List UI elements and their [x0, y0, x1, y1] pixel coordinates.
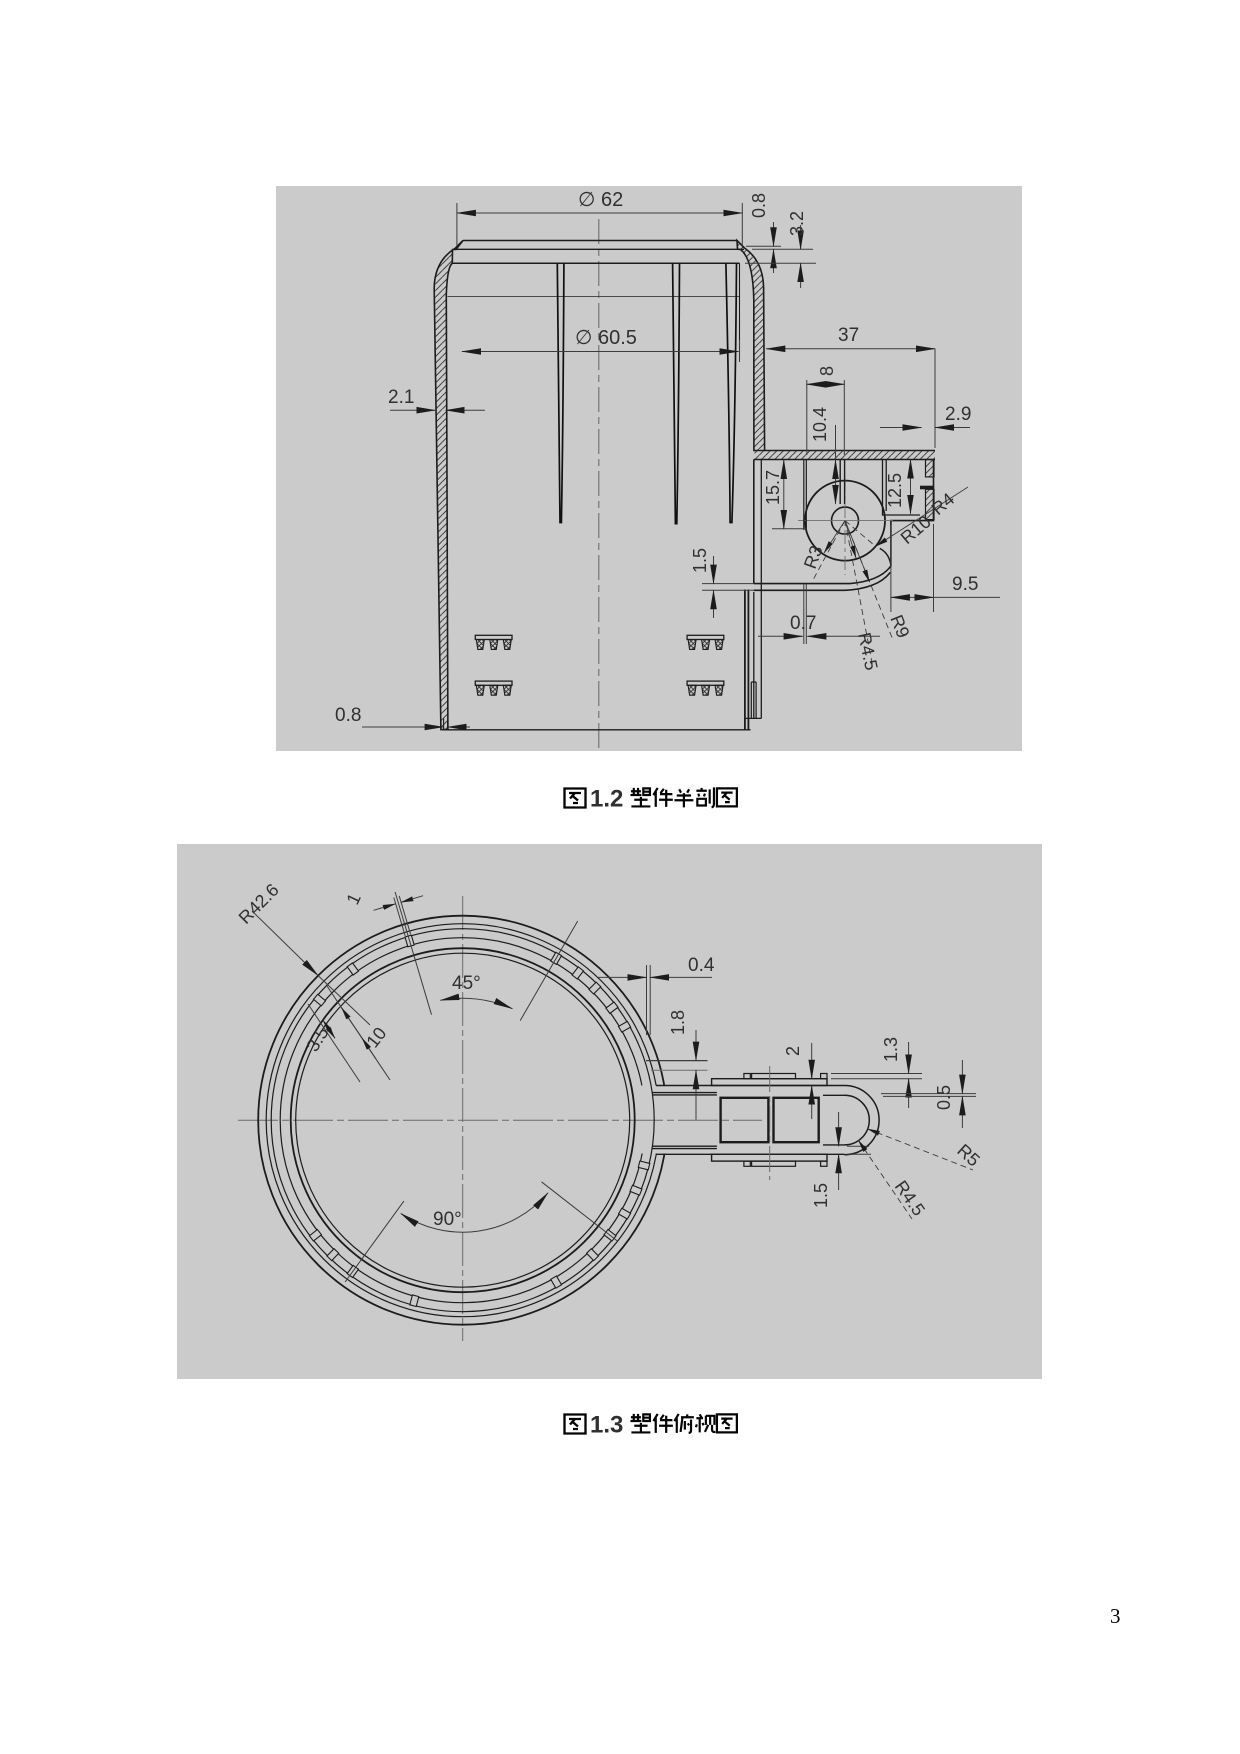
svg-text:1.8: 1.8 — [668, 1010, 688, 1035]
svg-text:15.7: 15.7 — [763, 470, 783, 505]
svg-text:37: 37 — [838, 325, 859, 346]
svg-text:0.5: 0.5 — [934, 1085, 954, 1110]
svg-text:2.9: 2.9 — [945, 404, 971, 425]
svg-text:1.5: 1.5 — [811, 1183, 831, 1208]
svg-text:90°: 90° — [433, 1209, 462, 1230]
svg-text:1.2: 1.2 — [590, 786, 623, 811]
svg-text:1.5: 1.5 — [690, 548, 710, 573]
svg-text:45°: 45° — [452, 973, 481, 994]
svg-text:1.3: 1.3 — [881, 1037, 901, 1062]
svg-text:8: 8 — [817, 366, 837, 376]
svg-text:∅ 62: ∅ 62 — [578, 189, 623, 211]
svg-text:1.3: 1.3 — [590, 1412, 623, 1437]
svg-text:0.8: 0.8 — [749, 193, 769, 218]
svg-text:2: 2 — [783, 1046, 803, 1056]
svg-text:0.8: 0.8 — [335, 705, 361, 726]
svg-text:0.7: 0.7 — [790, 613, 816, 634]
svg-text:3.2: 3.2 — [787, 211, 807, 236]
svg-text:9.5: 9.5 — [952, 574, 978, 595]
svg-text:0.4: 0.4 — [688, 955, 715, 976]
svg-text:2.1: 2.1 — [388, 387, 414, 408]
svg-text:∅ 60.5: ∅ 60.5 — [575, 327, 637, 349]
svg-text:10.4: 10.4 — [810, 407, 830, 442]
svg-text:12.5: 12.5 — [885, 473, 905, 508]
